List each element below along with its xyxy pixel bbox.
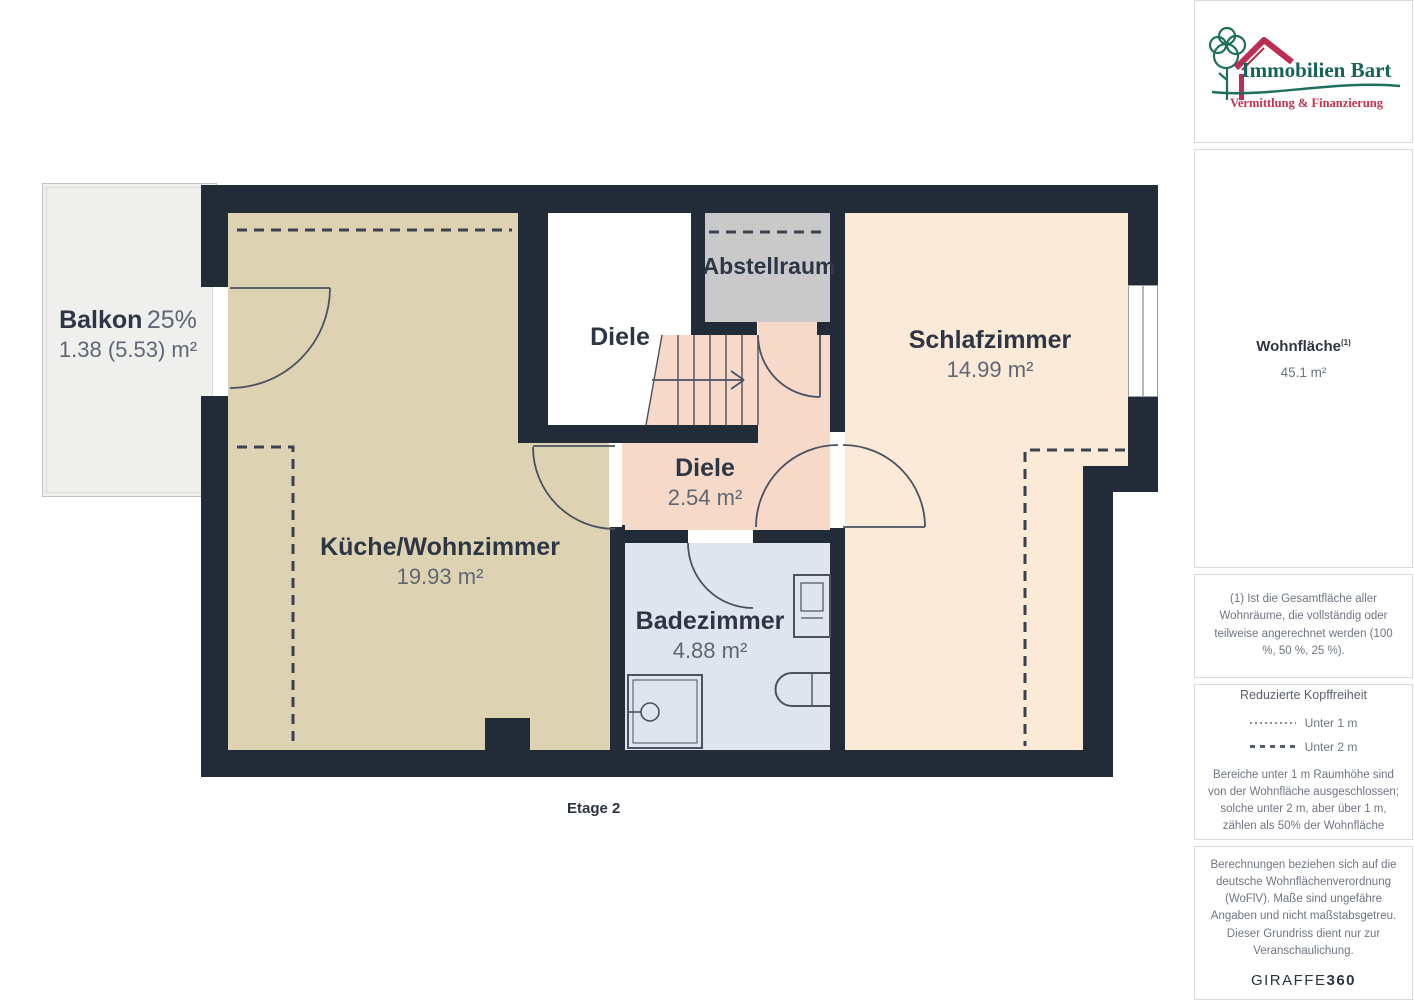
footnote-text: (1) Ist die Gesamtfläche aller Wohnräume… — [1209, 591, 1398, 660]
sidebar: Immobilien Bart Vermittlung & Finanzieru… — [1194, 0, 1413, 1000]
headroom-line-kueche-left — [237, 447, 293, 747]
legend-title: Reduzierte Kopffreiheit — [1240, 688, 1367, 702]
floor-label: Etage 2 — [567, 800, 620, 817]
legend-item-under-2m: Unter 2 m — [1250, 740, 1358, 754]
living-area-label: Wohnfläche(1) — [1256, 338, 1351, 355]
disclaimer-text: Berechnungen beziehen sich auf die deuts… — [1209, 857, 1398, 961]
legend-item-under-1m: Unter 1 m — [1250, 716, 1358, 730]
dashed-line-icon — [1250, 745, 1296, 748]
kueche-diele-door — [533, 446, 615, 529]
footnote-marker: (1) — [1341, 338, 1351, 347]
page: Balkon 25% 1.38 (5.53) m² Küche/Wohnzimm… — [0, 0, 1414, 1000]
disclaimer-card: Berechnungen beziehen sich auf die deuts… — [1194, 846, 1413, 1000]
dotted-line-icon — [1250, 722, 1296, 724]
company-logo: Immobilien Bart Vermittlung & Finanzieru… — [1206, 18, 1402, 126]
living-area-value: 45.1 m² — [1281, 365, 1327, 380]
balkon-door — [230, 288, 330, 388]
toilet-fixture — [776, 673, 831, 706]
giraffe360-watermark: GIRAFFE360 — [1251, 972, 1356, 989]
brand-name: Immobilien Bart — [1242, 58, 1392, 83]
brand-tagline: Vermittlung & Finanzierung — [1206, 96, 1408, 111]
legend-note: Bereiche unter 1 m Raumhöhe sind von der… — [1205, 767, 1402, 836]
plan-overlay — [0, 0, 1193, 1000]
footnote-card: (1) Ist die Gesamtfläche aller Wohnräume… — [1194, 574, 1413, 678]
legend-card: Reduzierte Kopffreiheit Unter 1 m Unter … — [1194, 684, 1413, 840]
floor-plan: Balkon 25% 1.38 (5.53) m² Küche/Wohnzimm… — [0, 0, 1193, 1000]
schlafzimmer-door — [756, 445, 925, 527]
badezimmer-door — [688, 543, 753, 608]
abstellraum-door — [758, 335, 820, 397]
shower-fixture — [628, 675, 702, 748]
logo-card: Immobilien Bart Vermittlung & Finanzieru… — [1194, 0, 1413, 143]
headroom-line-schlafzimmer — [1025, 450, 1125, 746]
sink-fixture — [794, 575, 830, 637]
living-area-card: Wohnfläche(1) 45.1 m² — [1194, 149, 1413, 568]
stairs — [646, 335, 758, 425]
